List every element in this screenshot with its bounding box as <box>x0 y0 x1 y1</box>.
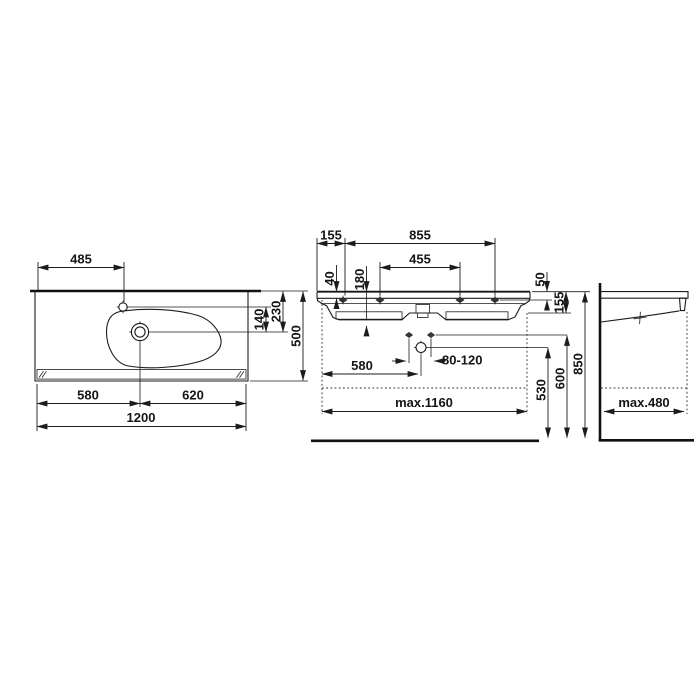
drain-icon <box>129 321 151 343</box>
dim-label-140: 140 <box>252 309 267 331</box>
dim-label-155-left: 155 <box>320 228 342 243</box>
basin-outline <box>107 309 222 367</box>
side-clearance: max.480 <box>601 312 687 414</box>
dim-label-500: 500 <box>289 325 304 347</box>
profile-center-mark <box>634 312 647 324</box>
bolt-icon <box>428 332 435 337</box>
dim-label-max1160: max.1160 <box>395 395 453 410</box>
dim-label-485: 485 <box>70 252 92 267</box>
dim-label-455: 455 <box>409 252 431 267</box>
basin-underside <box>318 298 530 320</box>
dim-label-620: 620 <box>182 388 204 403</box>
fixing-hole-icon <box>491 296 499 305</box>
fixing-hole-icon <box>339 296 347 305</box>
drawing-svg: 485 580 620 1200 140 230 500 <box>0 0 700 700</box>
overflow-tab <box>680 298 687 310</box>
dim-label-855: 855 <box>409 228 431 243</box>
front-view: 155 855 455 40 180 50 155 <box>311 228 590 441</box>
dim-label-80-120: 80-120 <box>442 353 482 368</box>
rail-end-marks <box>39 371 244 377</box>
dim-label-530: 530 <box>534 379 549 401</box>
clearance-box: max.1160 <box>322 300 527 414</box>
fixing-holes <box>339 296 499 305</box>
dim-label-50: 50 <box>533 272 548 286</box>
dim-bolt-spacing: 80-120 <box>392 353 482 368</box>
dim-label-40: 40 <box>322 271 337 285</box>
dim-label-580-front: 580 <box>351 358 373 373</box>
side-slab <box>600 292 688 299</box>
bolt-icon <box>406 332 413 337</box>
fixing-hole-icon <box>456 296 464 305</box>
technical-drawing: 485 580 620 1200 140 230 500 <box>0 0 700 700</box>
dim-label-180: 180 <box>352 269 367 291</box>
fixing-hole-icon <box>376 296 384 305</box>
dim-label-230: 230 <box>269 301 284 323</box>
dim-label-max480: max.480 <box>618 395 669 410</box>
dim-front-drain-offset: 580 <box>322 358 418 374</box>
slab-outline <box>317 292 530 298</box>
front-rail-strip <box>37 370 246 380</box>
right-rib-band <box>446 312 508 319</box>
plan-view: 485 580 620 1200 140 230 500 <box>30 252 308 432</box>
dim-right-of-front: 50 155 <box>500 272 571 313</box>
dim-label-850: 850 <box>571 353 586 375</box>
dim-hole-spacing: 155 855 455 <box>317 228 495 296</box>
dim-faucet-offset: 485 <box>38 252 124 303</box>
dim-plan-depths: 140 230 500 <box>250 291 308 381</box>
dim-label-155-right: 155 <box>552 292 567 314</box>
dim-label-1200: 1200 <box>127 410 156 425</box>
drain-boss <box>418 313 429 318</box>
side-view: max.480 <box>599 283 694 442</box>
left-rib-band <box>336 312 402 319</box>
dim-label-580-plan: 580 <box>77 388 99 403</box>
dim-label-600: 600 <box>553 368 568 390</box>
overflow-boss <box>416 305 430 314</box>
dim-bottom-widths: 580 620 1200 <box>37 384 246 431</box>
